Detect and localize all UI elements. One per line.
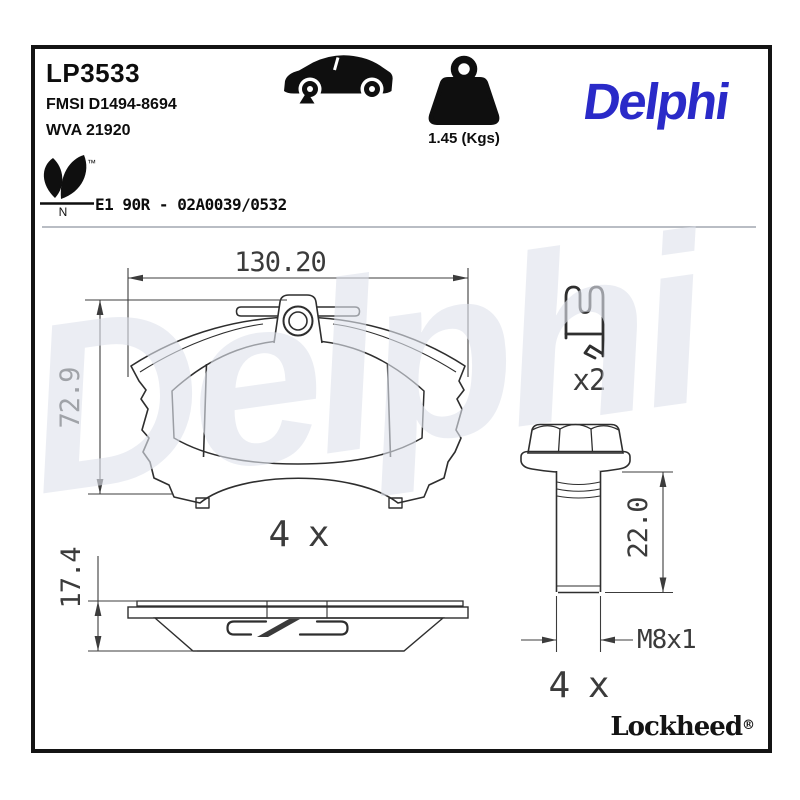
pad-height-dim: 72.9: [55, 367, 86, 428]
friction-slot-left: [204, 364, 207, 457]
bolt-quantity: 4 x: [548, 665, 608, 706]
width-arrow-left: [128, 275, 143, 281]
clip-channel-right: [300, 622, 348, 635]
weight-body: [431, 80, 497, 123]
backplate-edge-upper: [137, 601, 463, 606]
homologation-code: E1 90R - 02A0039/0532: [95, 195, 287, 214]
bolt-head-facets: [559, 429, 593, 452]
delphi-brand-logo: Delphi: [580, 72, 732, 131]
height-arrow-top: [97, 300, 104, 315]
bolt-length-arrow-bottom: [660, 578, 667, 593]
weight-icon: [431, 60, 497, 123]
eco-letter: N: [59, 205, 68, 219]
bolt-flange: [521, 452, 630, 473]
lockheed-logo-text: Lockheed: [610, 712, 742, 742]
backplate-outline: [131, 317, 465, 503]
pad-width-dim: 130.20: [234, 247, 326, 278]
height-arrow-bottom: [97, 479, 104, 494]
thickness-arrow-top: [95, 601, 102, 616]
pad-quantity: 4 x: [268, 514, 328, 555]
wva-code: WVA 21920: [46, 122, 130, 140]
thread-arrow-left: [542, 637, 557, 644]
clip-channel-left: [228, 622, 267, 635]
friction-material: [172, 340, 424, 464]
pad-front-view: [131, 295, 465, 508]
eco-leaf-icon: N ™: [40, 155, 96, 219]
bolt-head: [528, 425, 623, 454]
car-hub-rear: [369, 86, 375, 92]
car-front-axle-icon: [284, 55, 393, 103]
lockheed-logo: Lockheed®: [610, 712, 754, 742]
width-arrow-right: [453, 275, 468, 281]
fmsi-code: FMSI D1494-8694: [46, 96, 177, 114]
clip-quantity: x2: [573, 363, 606, 397]
weight-handle-ring: [455, 60, 474, 79]
part-number: LP3533: [46, 58, 140, 89]
thickness-arrow-bottom: [95, 636, 102, 651]
thread-arrow-right: [601, 637, 616, 644]
clip-wire-body: [566, 287, 603, 356]
bolt-thread-spec: M8x1: [637, 625, 696, 655]
friction-slot-right: [388, 364, 391, 457]
leaf-left: [44, 158, 62, 198]
pad-side-view: [128, 601, 468, 651]
bolt-length-dim: 22.0: [623, 497, 654, 558]
bolt-length-arrow-top: [660, 472, 667, 487]
registered-mark: ®: [742, 718, 754, 733]
leaf-right: [61, 155, 87, 199]
weight-value: 1.45 (Kgs): [406, 130, 522, 147]
clip-wire-hook: [585, 346, 603, 358]
pad-front-dimensions: 130.20 72.9 4 x: [55, 247, 468, 555]
retainer-clip: [566, 287, 603, 358]
eco-trademark: ™: [87, 158, 96, 168]
bolt-head-scallops: [532, 425, 619, 431]
pad-thickness-dim: 17.4: [56, 547, 87, 608]
car-hub-front: [307, 86, 313, 92]
bolt-shank-fill: [557, 471, 601, 592]
guide-bolt: [521, 425, 630, 593]
backplate-edge-lower: [128, 607, 468, 618]
bolt-dimensions: 22.0 M8x1 4 x: [521, 472, 696, 706]
